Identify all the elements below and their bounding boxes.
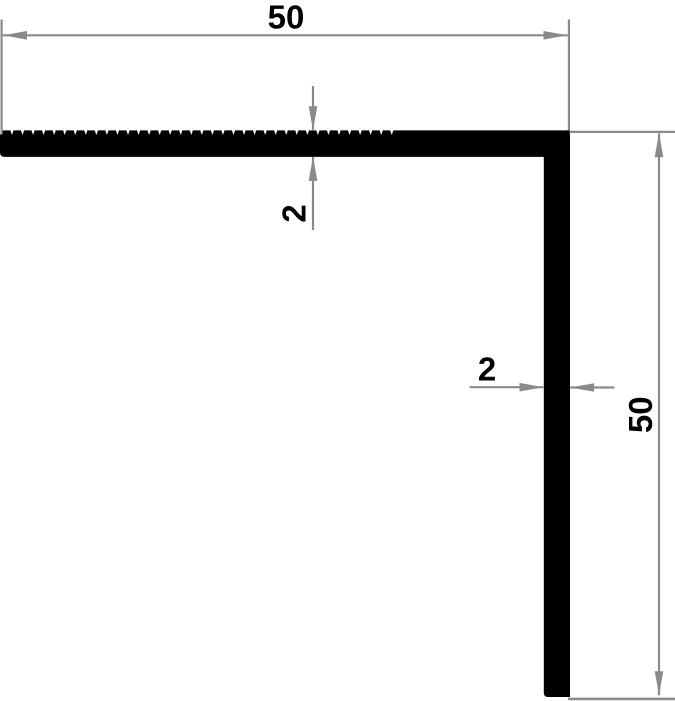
svg-text:50: 50	[268, 0, 305, 35]
svg-text:2: 2	[478, 351, 496, 388]
svg-text:50: 50	[622, 396, 659, 433]
svg-text:2: 2	[276, 204, 313, 222]
